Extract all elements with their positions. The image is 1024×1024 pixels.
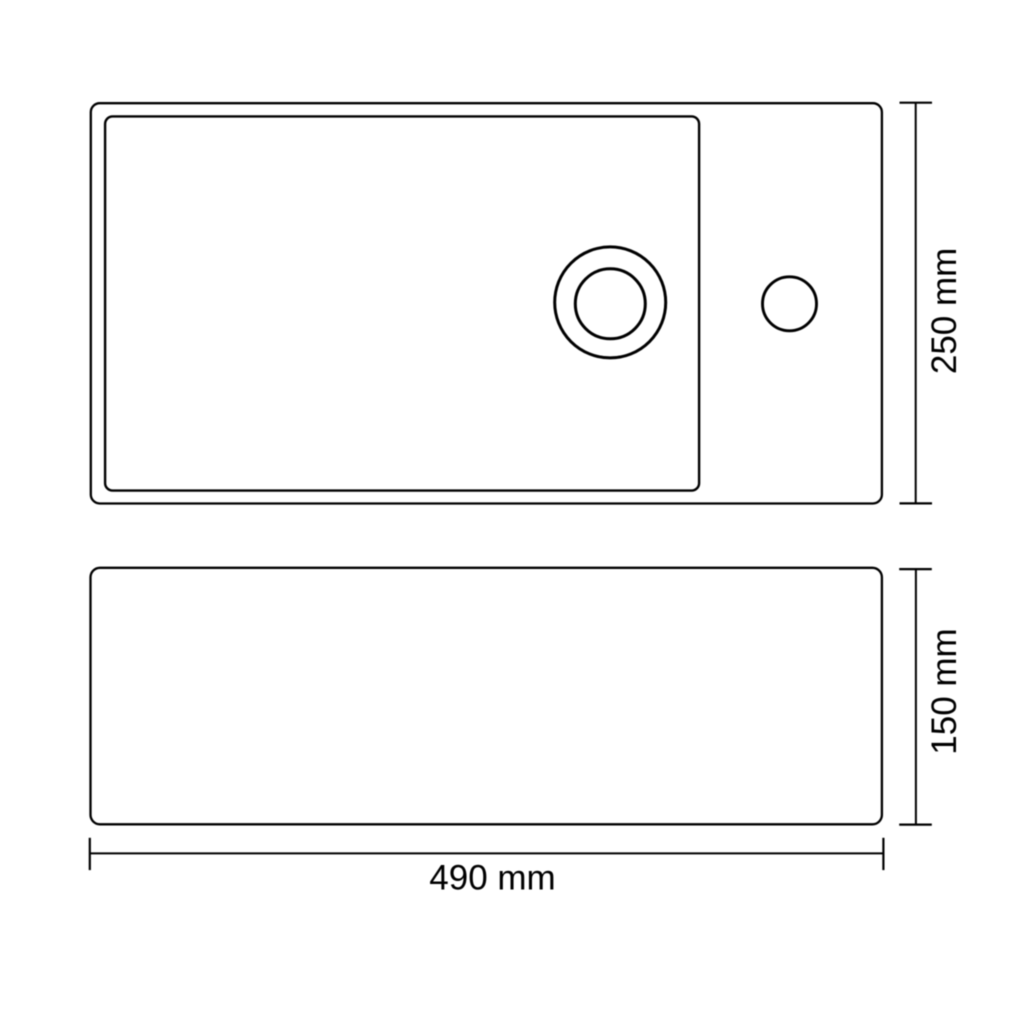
- svg-text:150 mm: 150 mm: [925, 628, 964, 754]
- svg-text:250 mm: 250 mm: [925, 248, 964, 374]
- svg-text:490 mm: 490 mm: [429, 859, 555, 898]
